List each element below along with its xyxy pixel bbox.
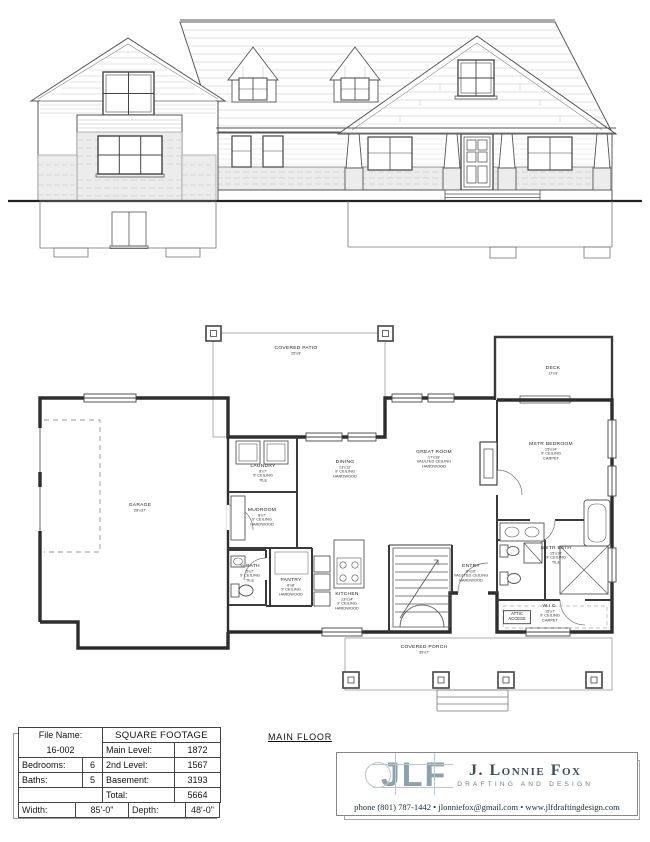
logo-gridline (373, 764, 453, 765)
wic-shelving (503, 606, 607, 628)
logo-gridline (373, 787, 453, 788)
width-value: 85'-0" (76, 803, 129, 817)
garage (36, 420, 100, 552)
title-block: File Name: SQUARE FOOTAGE 16-002 Main Le… (18, 727, 220, 818)
logo-box: JLF J. Lonnie Fox DRAFTING AND DESIGN ph… (336, 752, 638, 816)
main-floor-heading: MAIN FLOOR (268, 732, 332, 742)
main-floor-plan-drawing (0, 315, 650, 715)
gable-window (455, 60, 497, 99)
second-level-value: 1567 (175, 758, 221, 773)
covered-patio (206, 326, 393, 437)
upper-window (103, 72, 154, 115)
bump-out (77, 115, 182, 201)
file-name-value: 16-002 (19, 743, 103, 758)
depth-label: Depth: (129, 803, 186, 817)
depth-value: 48'-0" (186, 803, 219, 817)
porch-steps (437, 690, 508, 711)
main-wall (216, 133, 612, 201)
total-label: Total: (103, 788, 175, 803)
total-value: 5664 (175, 788, 221, 803)
logo-circle-icon (365, 762, 391, 788)
triple-window (96, 136, 164, 177)
interior-walls (228, 400, 612, 632)
hall-bath-fixtures (500, 543, 542, 563)
square-footage-header: SQUARE FOOTAGE (103, 728, 221, 743)
basement-value: 3193 (175, 773, 221, 788)
covered-porch (343, 638, 612, 711)
kitchen-fixtures (314, 540, 364, 606)
drawing-sheet: GARAGE28'x37' COVERED PATIO25'x9' DECK17… (0, 0, 650, 842)
fireplace (480, 442, 497, 485)
main-level-label: Main Level: (103, 743, 175, 758)
second-level-label: 2nd Level: (103, 758, 175, 773)
file-name-label: File Name: (19, 728, 103, 743)
front-elevation-drawing (0, 0, 650, 300)
pantry-shelves (275, 552, 308, 574)
contact-info: phone (801) 787-1442 • jlonniefox@gmail.… (337, 802, 637, 812)
main-level-value: 1872 (175, 743, 221, 758)
bedrooms-value: 6 (83, 758, 103, 773)
width-label: Width: (19, 803, 76, 817)
entry-steps (445, 190, 540, 201)
laundry-appliances (231, 441, 288, 540)
half-bath-fixtures (231, 556, 253, 597)
baths-value: 5 (83, 773, 103, 788)
front-door (461, 134, 493, 190)
deck (495, 337, 612, 403)
bedrooms-label: Bedrooms: (19, 758, 83, 773)
company-name: J. Lonnie Fox (469, 762, 582, 780)
stairs (393, 548, 450, 627)
company-tagline: DRAFTING AND DESIGN (457, 781, 593, 788)
logo-gridline (395, 753, 396, 795)
empty-cell (19, 788, 103, 803)
basement-label: Basement: (103, 773, 175, 788)
designer-logo-block: JLF J. Lonnie Fox DRAFTING AND DESIGN ph… (336, 752, 636, 814)
logo-gridline (434, 753, 435, 795)
baths-label: Baths: (19, 773, 83, 788)
jlf-logo: JLF (381, 758, 447, 792)
